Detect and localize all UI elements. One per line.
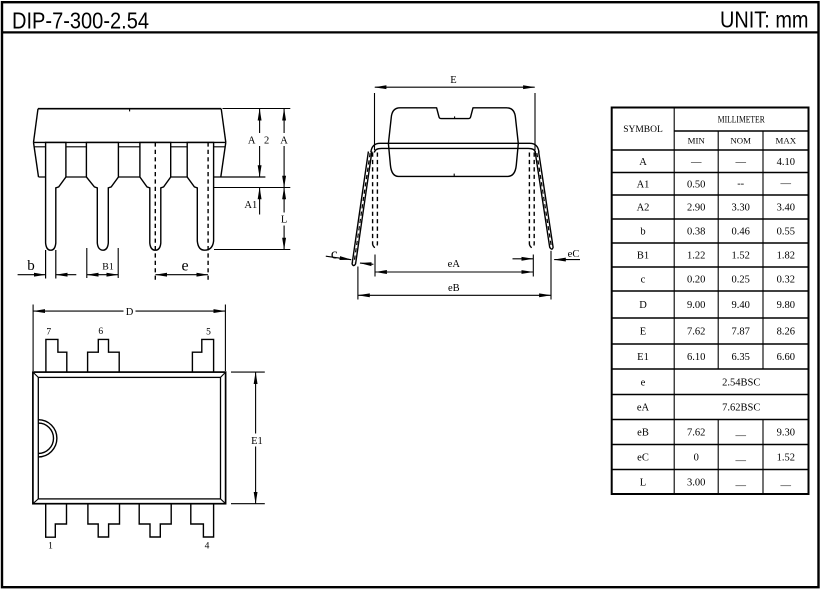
svg-text:7.62BSC: 7.62BSC [722,403,760,414]
svg-text:A1: A1 [244,200,257,211]
svg-text:A: A [639,157,647,168]
svg-text:6: 6 [98,327,103,337]
svg-text:6.35: 6.35 [732,352,750,363]
svg-text:e: e [641,377,646,388]
svg-text:eA: eA [637,403,650,414]
svg-text:MIN: MIN [688,136,706,146]
svg-text:—: — [734,480,746,491]
svg-text:B1: B1 [637,251,649,262]
svg-text:D: D [126,307,134,318]
svg-text:E1: E1 [251,436,263,447]
svg-text:—: — [780,480,792,491]
svg-text:6.60: 6.60 [777,352,795,363]
svg-text:A: A [280,136,288,147]
svg-text:b: b [640,227,645,238]
svg-text:B1: B1 [102,262,114,273]
svg-text:2: 2 [264,136,269,147]
svg-text:c: c [641,275,646,286]
svg-text:0.50: 0.50 [687,179,705,190]
svg-text:L: L [640,477,646,488]
svg-text:b: b [27,258,35,274]
svg-text:A: A [248,136,256,147]
svg-text:L: L [281,215,287,226]
svg-text:7.62: 7.62 [687,428,705,439]
svg-text:7.87: 7.87 [732,327,750,338]
svg-text:D: D [639,300,647,311]
svg-text:3.00: 3.00 [687,477,705,488]
svg-text:E1: E1 [637,352,649,363]
svg-text:e: e [181,257,188,274]
svg-text:7.62: 7.62 [687,327,705,338]
svg-text:E: E [640,327,646,338]
svg-text:--: -- [737,178,744,189]
svg-text:DIP-7-300-2.54: DIP-7-300-2.54 [12,7,149,33]
svg-text:SYMBOL: SYMBOL [623,125,663,135]
svg-text:0.32: 0.32 [777,275,795,286]
svg-text:UNIT: mm: UNIT: mm [720,7,809,33]
svg-text:2.54BSC: 2.54BSC [722,377,760,388]
svg-text:eC: eC [637,453,649,464]
svg-text:—: — [734,157,746,168]
svg-text:9.30: 9.30 [777,428,795,439]
svg-text:4.10: 4.10 [777,157,795,168]
svg-text:4: 4 [205,542,210,552]
svg-text:3.30: 3.30 [732,203,750,214]
svg-text:7: 7 [46,328,51,338]
svg-text:0.46: 0.46 [732,227,750,238]
svg-text:9.40: 9.40 [732,300,750,311]
svg-text:A2: A2 [637,203,650,214]
svg-text:0: 0 [694,453,699,464]
svg-text:0.38: 0.38 [687,227,705,238]
svg-text:0.25: 0.25 [732,275,750,286]
svg-text:eB: eB [637,428,649,439]
svg-text:MAX: MAX [776,136,797,146]
svg-text:MILLIMETER: MILLIMETER [718,116,766,126]
svg-text:eC: eC [568,249,580,260]
svg-text:A1: A1 [637,179,650,190]
svg-text:1.52: 1.52 [777,453,795,464]
svg-text:—: — [734,431,746,442]
svg-text:9.80: 9.80 [777,300,795,311]
svg-text:E: E [450,75,456,86]
svg-text:—: — [780,178,792,189]
svg-text:2.90: 2.90 [687,203,705,214]
svg-text:1.82: 1.82 [777,251,795,262]
svg-text:NOM: NOM [730,136,751,146]
svg-text:5: 5 [206,328,211,338]
svg-text:1: 1 [48,542,53,552]
svg-text:—: — [734,456,746,467]
svg-text:0.55: 0.55 [777,227,795,238]
svg-text:c: c [331,246,338,262]
svg-text:3.40: 3.40 [777,203,795,214]
svg-text:1.22: 1.22 [687,251,705,262]
svg-text:8.26: 8.26 [777,327,795,338]
svg-text:0.20: 0.20 [687,275,705,286]
svg-text:6.10: 6.10 [687,352,705,363]
svg-text:1.52: 1.52 [732,251,750,262]
svg-text:9.00: 9.00 [687,300,705,311]
svg-text:eB: eB [448,283,460,294]
svg-text:eA: eA [448,259,461,270]
svg-text:—: — [690,157,702,168]
